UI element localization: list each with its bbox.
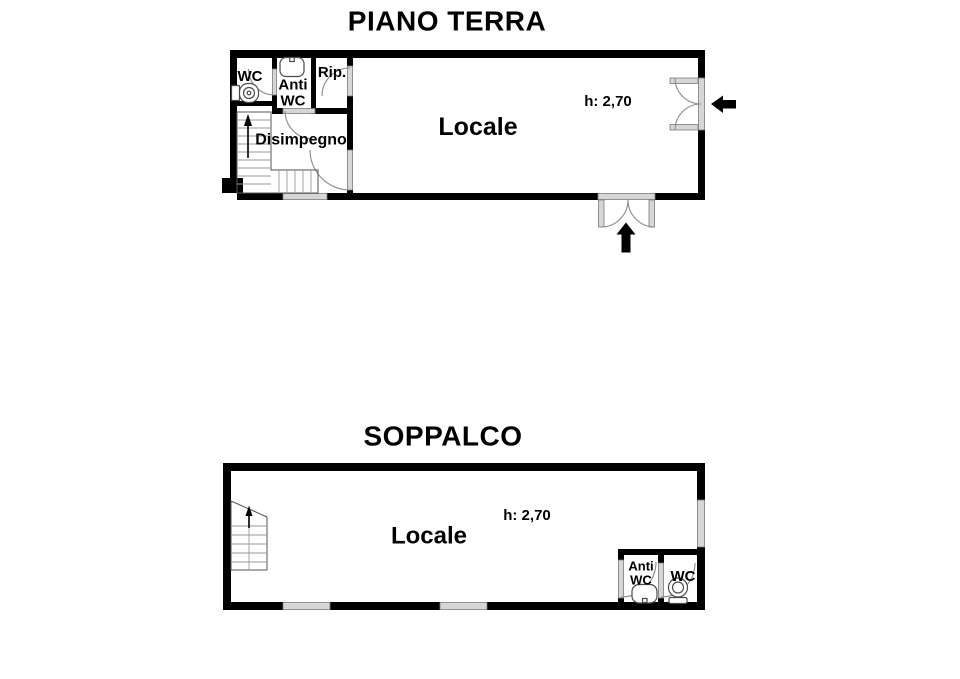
window-bottom (283, 194, 327, 200)
bottom-door-leaf-left (599, 200, 605, 227)
bottom-door-leaf-right (649, 200, 655, 227)
rip-door-jamb (348, 66, 353, 96)
disimpegno-door-jamb (348, 150, 353, 190)
right-door-leaf-bottom (670, 125, 698, 131)
pt-staircase (237, 112, 318, 193)
toilet-icon (232, 84, 259, 103)
sink-icon (632, 585, 657, 604)
entrance-door-bottom-sill (598, 194, 655, 200)
sink-icon (280, 58, 304, 77)
room-label-rip: Rip. (318, 65, 346, 81)
sp-window-right (698, 500, 705, 547)
antiwc-door-jamb (283, 109, 315, 114)
room-label-anti-wc-soppalco: Anti WC (623, 559, 659, 586)
entrance-arrow-right (711, 96, 736, 114)
stair-direction-arrow (246, 506, 253, 529)
room-label-anti-wc: Anti WC (273, 77, 313, 109)
sp-wc-door-jamb (659, 563, 664, 598)
room-label-disimpegno: Disimpegno (255, 133, 347, 150)
sp-staircase (231, 501, 267, 570)
sp-window-bottom-1 (283, 603, 330, 610)
floor-title-soppalco: SOPPALCO (363, 421, 522, 450)
room-label-wc: WC (238, 69, 263, 85)
sp-window-bottom-2 (440, 603, 487, 610)
floor-plan-drawing (0, 0, 960, 679)
room-label-locale: Locale (438, 114, 517, 140)
room-label-wc-soppalco: WC (671, 569, 696, 585)
right-door-leaf-top (670, 78, 698, 84)
floor-title-piano-terra: PIANO TERRA (348, 6, 546, 35)
floor-plan-page: PIANO TERRA WC Anti WC Rip. Disimpegno L… (0, 0, 960, 679)
entrance-arrow-bottom (617, 223, 636, 253)
room-label-locale-soppalco: Locale (391, 523, 467, 548)
height-note-soppalco: h: 2,70 (503, 508, 551, 524)
height-note-piano-terra: h: 2,70 (584, 94, 632, 110)
